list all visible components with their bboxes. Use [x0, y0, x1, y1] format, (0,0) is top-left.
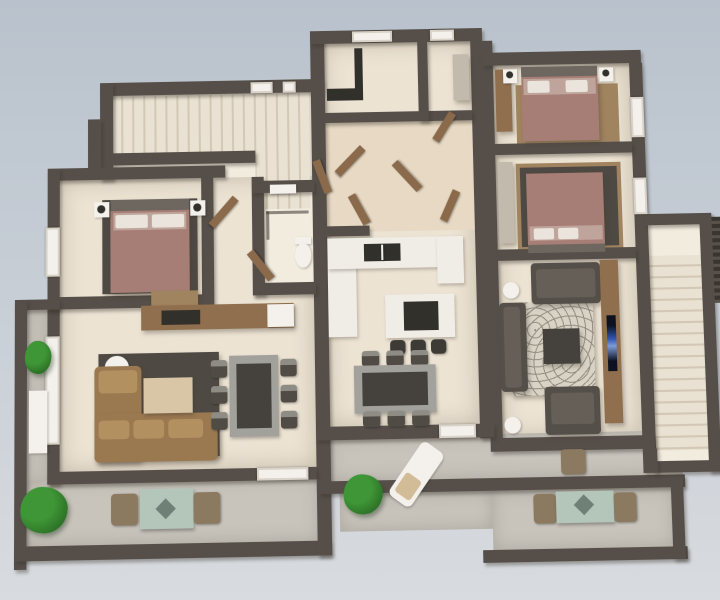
middle-balcony-door	[439, 424, 476, 438]
outdoor-cabinet	[29, 390, 48, 453]
floor-plan-render	[0, 0, 720, 600]
wall-bath-left	[252, 177, 266, 296]
tall-appliance	[354, 48, 363, 98]
pillow	[115, 215, 147, 229]
bed3-headboard	[528, 243, 605, 253]
wall-kitchen-stub	[325, 226, 370, 237]
sky-background	[0, 0, 720, 600]
bedroom2-window	[633, 177, 647, 214]
ceiling-light	[270, 184, 296, 194]
wall-bedroom-right	[201, 178, 214, 295]
bathroom2-window	[430, 30, 454, 41]
table-lamp	[506, 71, 513, 78]
toilet	[295, 243, 312, 268]
sofa-cushion	[133, 419, 164, 438]
island-cooktop	[404, 301, 439, 331]
parapet-left	[14, 300, 27, 570]
right-staircase-treads	[649, 255, 708, 451]
table-lamp	[602, 69, 609, 76]
sofa-dark-top-cushions	[536, 268, 596, 298]
middle-hallway-floor	[323, 118, 475, 232]
parapet-right-side	[670, 474, 686, 559]
outdoor-chair	[533, 494, 557, 524]
stair-window-2	[283, 81, 296, 92]
armchair-cushion	[551, 392, 595, 424]
sofa-cushion	[99, 420, 130, 439]
outdoor-chair	[193, 492, 220, 524]
bedroom-window	[46, 227, 60, 276]
left-balcony-door	[257, 467, 309, 481]
pillow	[565, 80, 587, 92]
parapet-right-front	[483, 546, 688, 563]
sofa-dark-left-cushions	[503, 307, 522, 388]
bedroom1-window	[630, 97, 645, 137]
coffee-table	[143, 377, 192, 413]
pillow	[558, 228, 579, 240]
wall-jog	[88, 119, 101, 172]
outdoor-chair	[111, 493, 138, 525]
cooktop	[161, 310, 200, 325]
dining-chair	[281, 411, 298, 429]
bar-stool	[431, 339, 447, 354]
fridge	[267, 304, 294, 327]
dining-chair	[387, 411, 405, 427]
coffee-table-dark	[543, 328, 581, 364]
sofa-cushion	[98, 370, 137, 394]
shower-glass-side	[266, 211, 269, 240]
dining-chair	[362, 351, 380, 367]
sideboard	[151, 290, 198, 305]
tall-cabinet	[437, 236, 464, 284]
laundry-window	[352, 31, 392, 43]
pillow	[527, 81, 549, 93]
closet	[452, 54, 469, 100]
pillow	[152, 214, 184, 228]
tv-screen	[606, 315, 617, 371]
outdoor-chair	[561, 449, 586, 475]
dining-chair	[386, 350, 404, 366]
sofa-cushion	[168, 419, 203, 439]
dining-table-2-top	[362, 372, 428, 407]
pillow	[534, 228, 555, 240]
entry-staircase-upper-flight	[116, 93, 310, 153]
dining-chair	[211, 360, 228, 378]
sink-divider	[381, 245, 383, 260]
wall-stairwell-patch	[643, 449, 658, 473]
stair-landing	[648, 224, 701, 256]
wardrobe-grey	[497, 162, 514, 244]
wall-stairwell-right-bottom	[653, 460, 720, 473]
dining-chair	[211, 386, 228, 404]
wall-utility-divider	[417, 42, 429, 121]
dining-chair	[412, 410, 430, 426]
dining-chair	[281, 385, 298, 403]
dining-table-top	[236, 363, 272, 428]
dining-chair	[363, 411, 381, 427]
outdoor-chair	[613, 492, 637, 522]
wall-bath-bottom	[253, 282, 316, 296]
stair-window-1	[251, 82, 273, 93]
dining-chair	[211, 412, 228, 430]
dining-chair	[280, 359, 297, 377]
dining-chair	[411, 350, 429, 366]
